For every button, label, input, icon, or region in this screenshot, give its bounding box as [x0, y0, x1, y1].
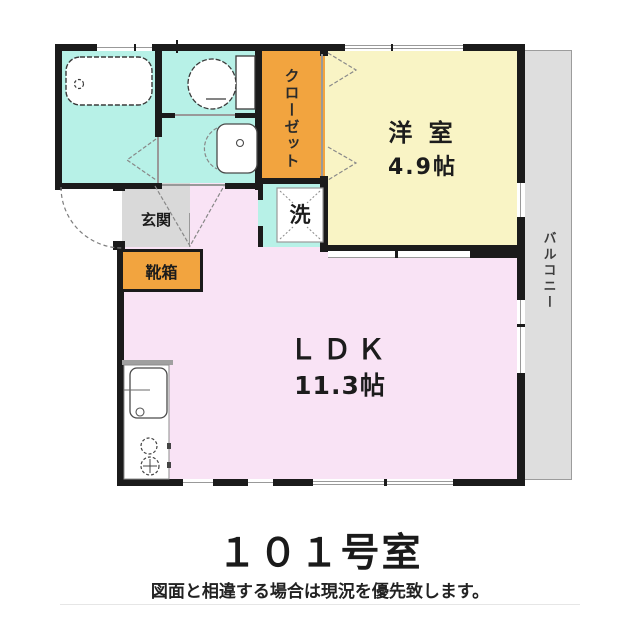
vanity-sink [217, 124, 257, 173]
bathtub [66, 57, 152, 105]
balcony-label: バルコニー [535, 208, 561, 333]
ldk-size: 11.3帖 [240, 368, 440, 400]
disclaimer-text: 図面と相違する場合は現況を優先致します。 [0, 577, 640, 602]
stove-knob-2 [167, 462, 171, 468]
western-room-label: 洋 室 [330, 112, 515, 148]
kitchen-counter-cap [122, 360, 173, 365]
ldk-label: ＬＤＫ [240, 330, 440, 366]
stove-knob-1 [167, 443, 171, 449]
bathroom-door-icon [127, 139, 156, 180]
laundry-label: 洗 [277, 197, 323, 231]
floor-plan-page: 靴箱 クローゼット 洋 室 4.9帖 洗 玄関 ＬＤＫ 11.3帖 バルコニー … [0, 0, 640, 640]
toilet-tank [236, 56, 255, 109]
entrance-label: 玄関 [130, 209, 182, 229]
toilet-bowl [188, 59, 236, 109]
closet-label: クローゼット [279, 60, 305, 178]
western-room-size: 4.9帖 [330, 150, 515, 180]
unit-title: １０１号室 [0, 522, 640, 578]
vanity-door-arc [204, 128, 217, 169]
kitchen-sink [130, 368, 167, 418]
entrance-door-arc [61, 187, 122, 248]
closet-folding-door-upper [328, 53, 356, 87]
